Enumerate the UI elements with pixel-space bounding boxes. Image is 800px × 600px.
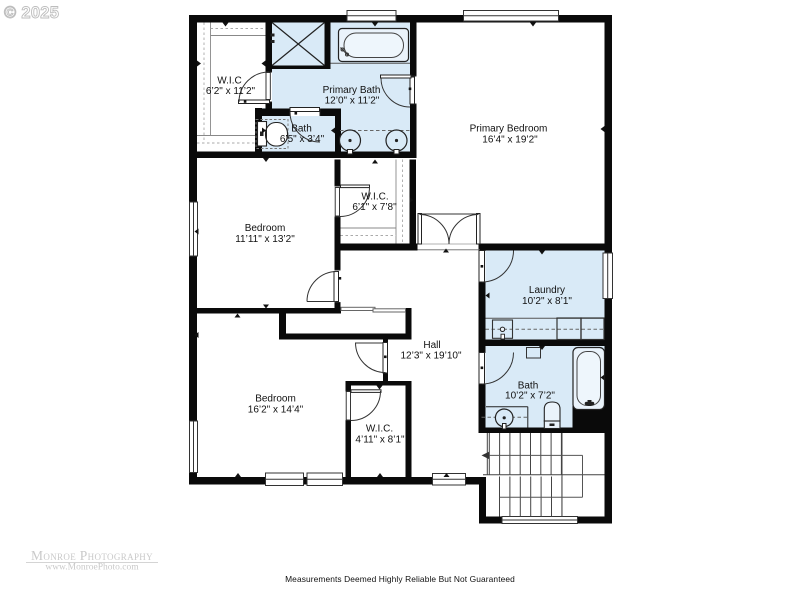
svg-text:10’2" x 7’2": 10’2" x 7’2" [505, 391, 555, 402]
svg-text:www.MonroePhoto.com: www.MonroePhoto.com [45, 563, 139, 573]
svg-text:Bedroom: Bedroom [245, 223, 286, 234]
svg-text:12’3" x 19’10": 12’3" x 19’10" [400, 351, 461, 362]
svg-text:Primary Bedroom: Primary Bedroom [470, 124, 548, 135]
svg-text:16’4" x 19’2": 16’4" x 19’2" [482, 135, 538, 146]
svg-text:Monroe Photography: Monroe Photography [31, 548, 153, 563]
svg-text:W.I.C.: W.I.C. [361, 192, 388, 203]
svg-text:6’5" x 3’4": 6’5" x 3’4" [280, 134, 325, 145]
svg-text:Hall: Hall [423, 340, 440, 351]
svg-text:12’0" x 11’2": 12’0" x 11’2" [325, 96, 380, 107]
svg-text:Primary Bath: Primary Bath [323, 85, 381, 96]
svg-text:© 2025: © 2025 [4, 4, 59, 22]
svg-text:16’2" x 14’4": 16’2" x 14’4" [248, 405, 304, 416]
svg-text:10’2" x 8’1": 10’2" x 8’1" [522, 296, 572, 307]
svg-text:11’11" x 13’2": 11’11" x 13’2" [235, 234, 295, 245]
svg-text:Measurements Deemed Highly Rel: Measurements Deemed Highly Reliable But … [285, 574, 515, 584]
svg-text:Bath: Bath [291, 124, 312, 135]
svg-text:W.I.C: W.I.C [217, 76, 241, 87]
svg-text:Bedroom: Bedroom [255, 394, 296, 405]
svg-text:W.I.C.: W.I.C. [366, 424, 393, 435]
svg-text:6’1" x 7’8": 6’1" x 7’8" [352, 202, 397, 213]
svg-text:Laundry: Laundry [529, 285, 565, 296]
svg-text:6’2" x 11’2": 6’2" x 11’2" [206, 86, 256, 97]
svg-text:4’11" x 8’1": 4’11" x 8’1" [355, 435, 405, 446]
